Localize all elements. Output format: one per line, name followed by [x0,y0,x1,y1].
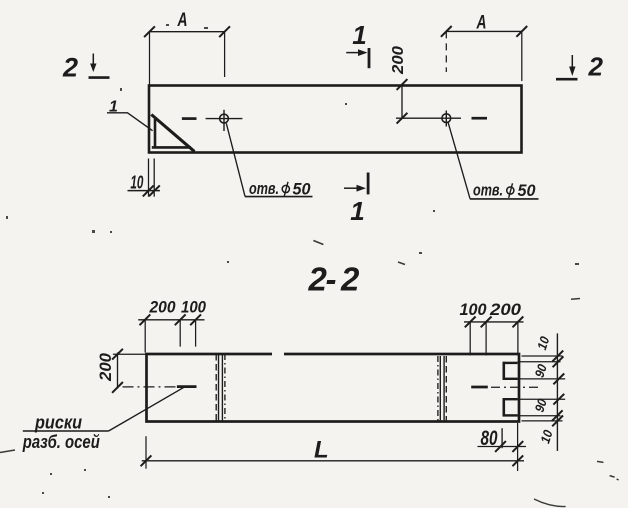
svg-text:2: 2 [588,52,604,82]
svg-text:2-2: 2-2 [308,261,361,298]
svg-text:200: 200 [96,352,115,382]
svg-text:10: 10 [130,173,143,193]
svg-text:отв.: отв. [473,181,503,200]
svg-text:2: 2 [62,53,78,83]
svg-text:100: 100 [181,298,207,316]
svg-text:A: A [476,13,487,34]
svg-text:1: 1 [350,196,364,226]
svg-text:200: 200 [489,301,522,319]
svg-text:риски: риски [34,413,82,433]
svg-text:50: 50 [518,181,537,200]
svg-text:L: L [314,437,329,464]
svg-text:200: 200 [390,46,407,75]
svg-text:200: 200 [149,298,177,316]
svg-text:1: 1 [352,20,366,50]
svg-text:50: 50 [293,180,312,199]
svg-text:A: A [177,10,188,31]
svg-text:100: 100 [460,301,488,319]
svg-text:разб. осей: разб. осей [22,432,100,452]
svg-text:80: 80 [481,427,498,450]
svg-text:отв.: отв. [249,179,279,198]
